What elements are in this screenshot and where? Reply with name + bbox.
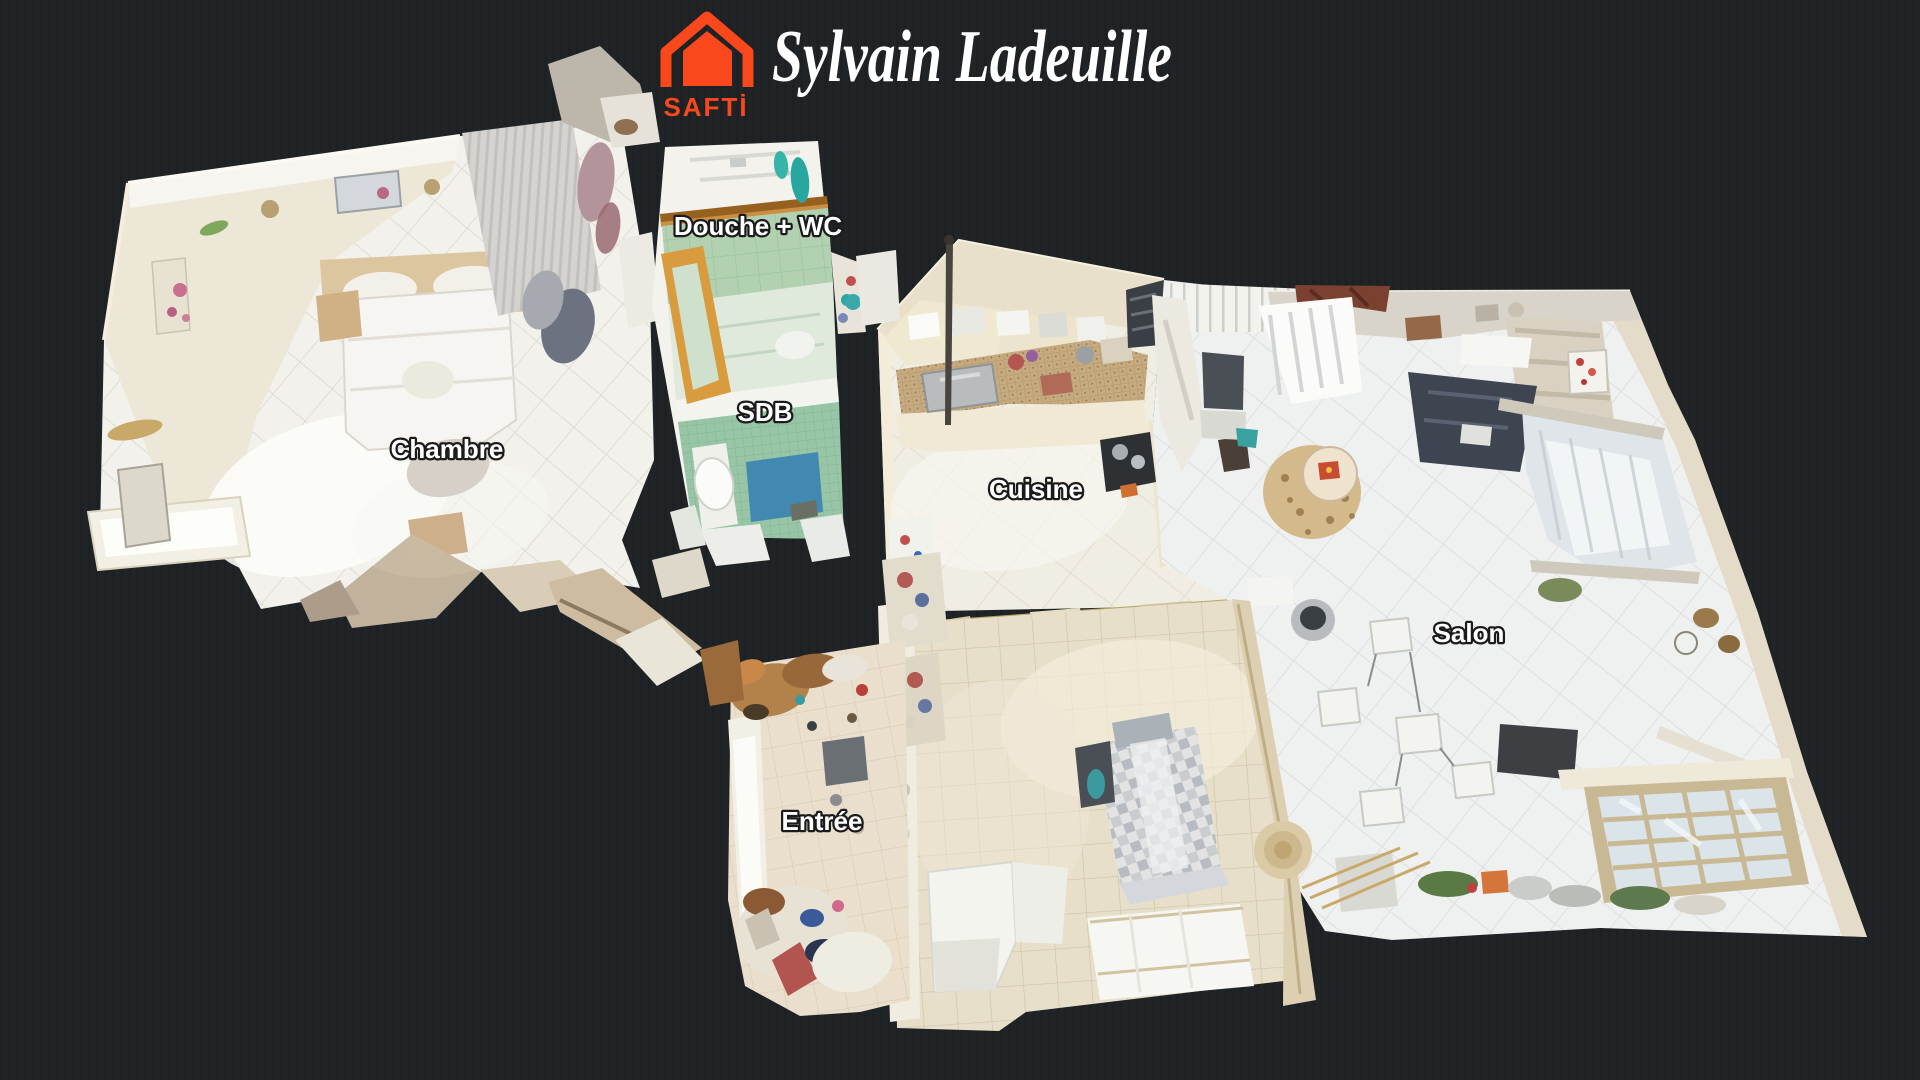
svg-text:Cuisine: Cuisine [989,474,1083,504]
svg-text:Douche + WC: Douche + WC [674,211,843,241]
svg-text:Entrée: Entrée [782,806,863,836]
svg-text:SDB: SDB [738,397,793,427]
svg-text:Sylvain Ladeuille: Sylvain Ladeuille [772,16,1172,98]
svg-text:Salon: Salon [1434,618,1505,648]
svg-text:Chambre: Chambre [391,434,504,464]
svg-text:SAFTİ: SAFTİ [663,92,748,122]
